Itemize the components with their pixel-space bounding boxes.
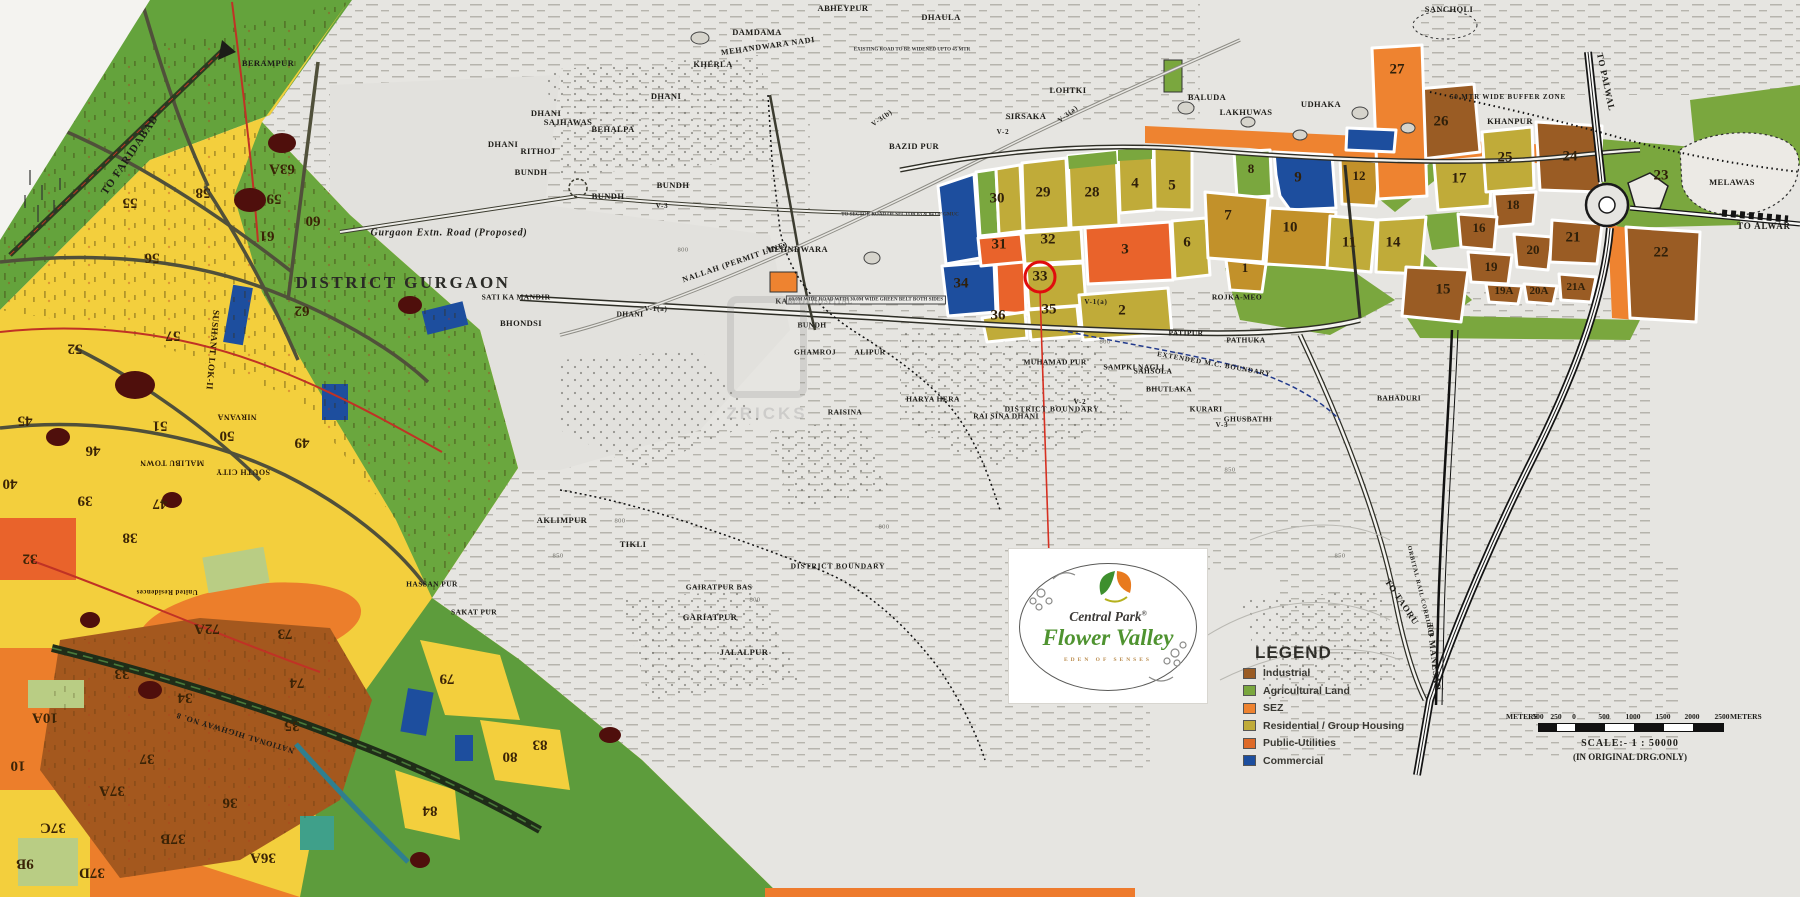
sector-number: 5 [1168,178,1176,195]
legend-row: Industrial [1243,667,1453,679]
road-label: V-2 [1074,398,1087,406]
left-map-sector-number: 84 [423,802,438,819]
village-label: BAHADURI [1377,394,1421,403]
village-label: MUHAMAD PUR [1023,358,1086,367]
left-map-sector-number: 74 [290,674,305,691]
sector-number: 1 [1242,260,1249,276]
road-label: V-1(a) [1084,298,1107,306]
left-map-sector-number: 33 [115,665,130,682]
sector-number: 6 [1183,235,1191,252]
village-label: KURARI [1190,405,1223,414]
sector-number: 15 [1436,282,1451,299]
left-map-sector-number: 52 [68,340,83,357]
map-note: TO SECTOR ROAD OF SECTOR 63 & 64 OF GMUC [841,213,959,218]
village-label: GHAMROJ [794,348,836,357]
legend-row: Residential / Group Housing [1243,720,1453,732]
road-label: V-3 [656,202,669,210]
sector-number: 22 [1654,245,1669,262]
logo-brand: Central Park® [1009,609,1207,625]
scale-meters-right: METERS [1730,712,1762,721]
left-map-sector-number: 36A [250,849,276,866]
village-label: RAISINA [828,408,862,417]
contour-label: 800 [1100,339,1111,346]
left-map-sector-number: 80 [503,748,518,765]
village-label: KHANPUR [1487,116,1533,126]
left-map-sector-number: 72A [194,620,220,637]
village-label: ROJKA-MEO [1212,293,1262,302]
contour-label: 800 [750,597,761,604]
left-map-sector-number: 45 [18,412,33,429]
village-label: SATI KA MANDIR [482,293,551,302]
sector-number: 31 [992,237,1007,254]
village-label: BHONDSI [500,318,542,328]
village-label: JALALPUR [720,647,769,657]
village-label: HARYA HERA [906,395,960,404]
sector-number: 32 [1041,232,1056,249]
left-map-sector-number: 39 [78,492,93,509]
sector-number: 14 [1386,235,1401,252]
contour-label: 800 [879,524,890,531]
village-label: DHANI [488,139,518,149]
contour-label: 850 [1335,553,1346,560]
left-map-sector-number: 49 [295,434,310,451]
road-label: V-3 [1216,421,1229,429]
legend-label: Industrial [1263,667,1310,679]
road-label: ORBITAL RAIL CORRIDOR [1406,545,1435,638]
map-note: EXISTING ROAD TO BE WIDENED UPTO 45 MTR [854,48,970,53]
scale-tick: 2500 [1715,712,1730,721]
sector-number: 26 [1434,114,1449,131]
road-label: V-2 [997,128,1010,136]
village-label: DHAULA [921,12,960,22]
left-map-sector-number: 32 [23,550,38,567]
boundary-label: DISTRICT GURGAON [296,273,511,293]
sector-number: 4 [1131,176,1139,193]
village-label: BHUTLAKA [1146,385,1192,394]
sector-number: 10 [1283,220,1298,237]
boundary-label: Gurgaon Extn. Road (Proposed) [370,228,527,239]
sector-number: 36 [991,308,1006,325]
village-label: AKLIMPUR [537,515,587,525]
village-label: MELAWAS [1709,177,1755,187]
village-label: SAHSOLA [1134,367,1173,376]
project-logo-card: Central Park® Flower Valley EDEN OF SENS… [1008,548,1208,704]
scale-segment [1664,724,1693,731]
left-map-place-label: MALIBU TOWN [140,459,204,468]
sector-number: 19 [1485,259,1498,275]
leaf-swirl-icon [1100,571,1131,602]
legend-swatch [1243,668,1256,679]
left-map-sector-number: 61 [260,227,275,244]
village-label: TIKLI [620,539,647,549]
village-label: PATHUKA [1226,336,1265,345]
sector-number: 30 [990,191,1005,208]
legend-row: Commercial [1243,755,1453,767]
left-map-sector-number: 47 [153,495,168,512]
scale-segment [1539,724,1557,731]
village-label: BUNDH [515,167,548,177]
sector-number: 9 [1294,170,1302,187]
sector-number: 24 [1563,149,1578,166]
registered-mark: ® [1142,610,1147,618]
left-map-sector-number: 79 [440,670,455,687]
village-label: GHUSBATHI [1224,415,1272,424]
sector-number: 12 [1353,168,1366,184]
left-map-sector-number: 35 [285,717,300,734]
road-label: MEHANDWARA NADI [720,35,815,57]
left-map-sector-number: 37 [140,750,155,767]
left-map-sector-number: 50 [220,427,235,444]
scale-tick: 0 [1572,712,1576,721]
logo-tagline: EDEN OF SENSES [1009,657,1207,663]
village-label: HASSAN PUR [406,580,458,589]
village-label: DAMDAMA [732,27,782,37]
legend-title: LEGEND [1255,643,1453,663]
sector-number: 23 [1654,168,1669,185]
left-map-sector-number: 63A [269,160,295,177]
legend-row: Agricultural Land [1243,685,1453,697]
scale-tick: 1500 [1656,712,1671,721]
left-map-place-label: United Residences [136,588,197,596]
legend: LEGEND IndustrialAgricultural LandSEZRes… [1243,643,1453,772]
sector-number: 29 [1036,185,1051,202]
scale-segment [1557,724,1575,731]
road-label: TO PALWAL [1595,52,1617,112]
scale-segment [1693,724,1723,731]
left-map-sector-number: 36 [223,794,238,811]
road-label: V-1(a) [644,305,667,313]
village-label: SAJHAWAS [544,117,593,127]
left-map-sector-number: 57 [166,327,181,344]
road-label: NALLAH (PERMIT LINE) [681,240,789,285]
village-label: RITHOJ [521,146,556,156]
legend-swatch [1243,755,1256,766]
sector-number: 25 [1498,150,1513,167]
village-label: ALIPUR [854,348,885,357]
sector-number: 35 [1042,302,1057,319]
left-map-sector-number: 46 [86,442,101,459]
village-label: DHANI [651,91,681,101]
village-label: GAIRATPUR BAS [686,583,753,592]
scale-tick: 500 [1532,712,1543,721]
legend-row: SEZ [1243,702,1453,714]
sector-number: 2 [1118,303,1126,320]
left-map-sector-number: 83 [533,736,548,753]
boundary-label: EXTENDED M.C. BOUNDARY [1157,350,1272,378]
left-map-place-label: SOUTH CITY [216,468,270,477]
left-map-sector-number: 58 [196,184,211,201]
scale-tick: 2000 [1685,712,1700,721]
sector-number: 19A [1495,285,1514,297]
sector-number: 27 [1390,62,1405,79]
village-label: DHANI [616,310,643,319]
boundary-label: DISTRICT BOUNDARY [791,562,886,571]
village-label: LAKHUWAS [1220,107,1273,117]
legend-swatch [1243,720,1256,731]
left-map-sector-number: 56 [145,249,160,266]
scale-text: SCALE:- 1 : 50000 [1538,738,1722,749]
road-label: V-3(b) [870,108,894,128]
logo-project-name: Flower Valley [1009,625,1207,651]
left-map-place-label: NIRVANA [217,413,256,422]
village-label: BUNDH [592,191,625,201]
village-label: BEHALPA [591,124,634,134]
scale-tick: 1000 [1626,712,1641,721]
sector-number: 28 [1085,185,1100,202]
village-label: BUNDH [797,321,826,330]
sector-number: 7 [1224,208,1232,225]
left-map-sector-number: 59 [267,190,282,207]
left-map-sector-number: 9B [16,855,34,872]
village-label: BAZID PUR [889,141,939,151]
legend-label: Public-Utilities [1263,737,1336,749]
scale-segment [1634,724,1664,731]
village-label: BALUDA [1188,92,1226,102]
sector-number: 20A [1530,285,1549,297]
contour-label: 850 [553,553,564,560]
sector-number: 34 [954,276,969,293]
sector-number: 11 [1342,235,1356,252]
scale-tick: 500 [1598,712,1609,721]
left-map-sector-number: 34 [178,689,193,706]
village-label: PATIPUR [1168,329,1203,338]
scale-tick: 250 [1550,712,1561,721]
village-label: GARIATPUR [683,612,737,622]
masterplan-map: BERAMPURDHANIKHERLADAMDAMAABHEYPURDHAULA… [0,0,1800,897]
road-label: NATIONAL HIGHWAY NO. 8 [175,711,295,756]
boundary-label: 50 MTR WIDE BUFFER ZONE [1450,93,1566,101]
sector-number: 21A [1567,281,1586,293]
legend-label: Agricultural Land [1263,685,1350,697]
left-map-sector-number: 55 [123,194,138,211]
map-note: 60.0M WIDE ROAD WITH 30.0M WIDE GREEN BE… [786,296,946,305]
legend-swatch [1243,738,1256,749]
sector-number: 17 [1452,171,1467,188]
village-label: ABHEYPUR [818,3,869,13]
sector-number: 3 [1121,242,1129,259]
sector-number: 18 [1507,197,1520,213]
village-label: SANCHOLI [1425,4,1474,14]
left-map-sector-number: 40 [3,475,18,492]
legend-label: SEZ [1263,702,1283,714]
village-label: KHERLA [693,59,732,69]
village-label: UDHAKA [1301,99,1341,109]
road-label: V-3(a) [1056,104,1079,125]
village-label: BUNDH [657,180,690,190]
sector-number: 20 [1527,242,1540,258]
legend-row: Public-Utilities [1243,737,1453,749]
legend-swatch [1243,685,1256,696]
scale-bar-segments [1538,723,1724,732]
village-label: SIRSAKA [1006,111,1047,121]
left-map-sector-number: 10 [11,757,26,774]
road-label: TO FARIDABAD [99,113,161,197]
contour-label: 800 [678,247,689,254]
sector-number: 16 [1473,220,1486,236]
village-label: LOHTKI [1050,85,1087,95]
scale-segment [1575,724,1605,731]
left-map-place-label: SUSHANT LOK-II [205,310,222,391]
left-map-sector-number: 60 [306,212,321,229]
scale-segment [1605,724,1634,731]
left-map-sector-number: 62 [295,302,310,319]
left-map-sector-number: 38 [123,529,138,546]
legend-items: IndustrialAgricultural LandSEZResidentia… [1243,667,1453,767]
village-label: BERAMPUR [242,58,294,68]
scale-bar: METERS 50025005001000150020002500 METERS… [1498,712,1738,772]
legend-label: Residential / Group Housing [1263,720,1404,732]
left-map-sector-number: 37D [79,864,105,881]
left-map-sector-number: 37A [99,782,125,799]
left-map-sector-number: 51 [153,417,168,434]
legend-swatch [1243,703,1256,714]
contour-label: 800 [615,518,626,525]
sector-number: 21 [1566,230,1581,247]
left-map-sector-number: 73 [278,625,293,642]
left-map-sector-number: 10A [32,709,58,726]
village-label: SAKAT PUR [451,608,497,617]
legend-label: Commercial [1263,755,1323,767]
scale-note: (IN ORIGINAL DRG.ONLY) [1538,752,1722,762]
sector-number: 8 [1248,161,1255,177]
sector-number-circled: 33 [1033,269,1048,286]
contour-label: 850 [1225,467,1236,474]
road-label: TO ALWAR [1737,221,1791,231]
left-map-sector-number: 37C [40,819,66,836]
left-map-sector-number: 37B [160,830,185,847]
